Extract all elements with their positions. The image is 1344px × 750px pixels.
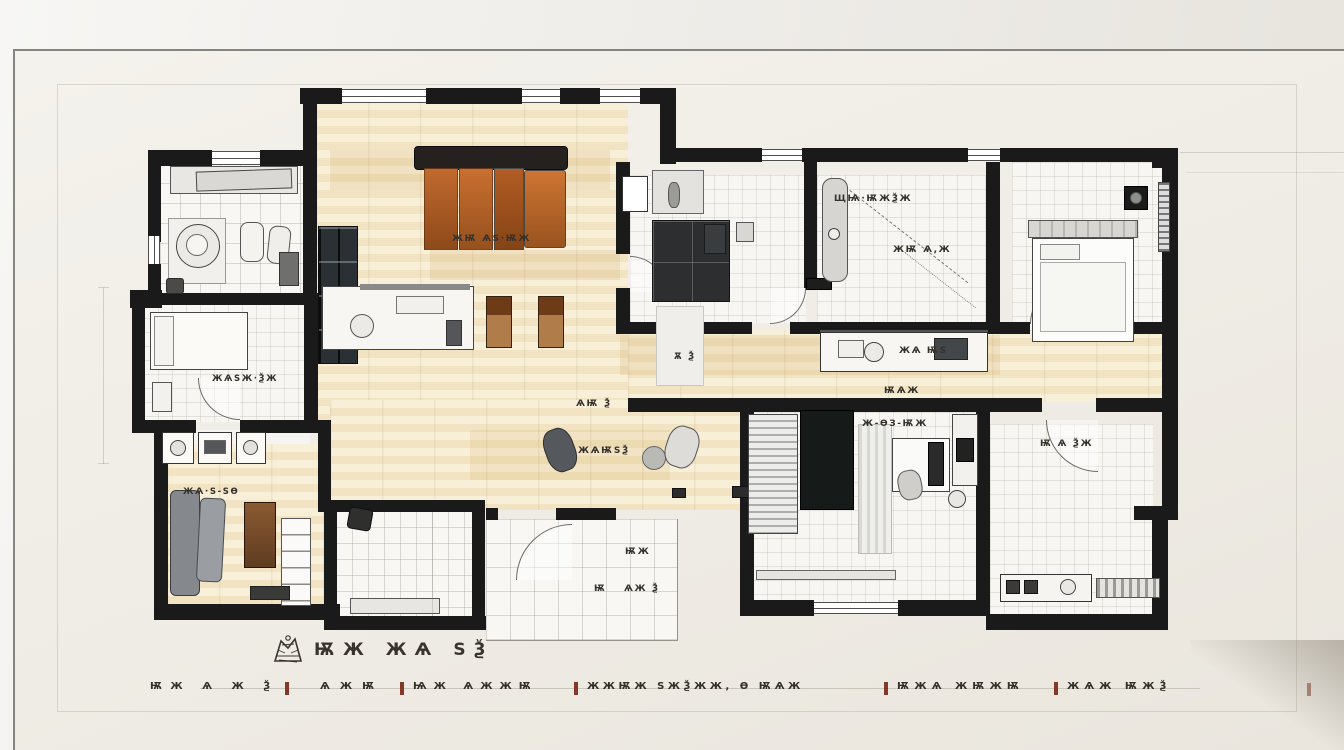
wall-segment [1152, 506, 1168, 630]
window [600, 89, 640, 103]
tv-cabinet-icon [244, 502, 276, 568]
patio-label: ѬЖ [625, 547, 650, 558]
wall-segment [560, 88, 600, 104]
wall-segment [976, 412, 990, 616]
rug-icon [656, 306, 704, 386]
dimension-line [103, 288, 104, 464]
wall-segment [676, 148, 762, 162]
wall-segment [148, 150, 161, 242]
wall-segment [986, 614, 1168, 630]
floor-patio [486, 519, 678, 641]
legend-tick [574, 682, 578, 695]
sink-icon [1060, 579, 1076, 595]
legend-item: ЖѦЖ ѬЖѮ [1067, 681, 1171, 692]
radiator-icon [1158, 182, 1170, 252]
rug-icon [858, 424, 892, 554]
legend-tick [400, 682, 404, 695]
wall-segment [556, 508, 616, 520]
wardrobe-icon [800, 410, 854, 510]
window [968, 149, 1000, 161]
counter-tray-icon [396, 296, 444, 314]
legend-item: ѨЖ ѦЖЖѬ [413, 681, 538, 692]
side-chair-icon [538, 296, 564, 348]
wall-segment [132, 300, 145, 432]
wall-segment [304, 293, 318, 433]
dial-icon [948, 490, 966, 508]
mattress-icon [748, 414, 798, 534]
room-label: ЖѬ ѦЅ·ѬЖ [452, 234, 531, 245]
wall-segment [486, 508, 498, 520]
room-label: ЖѦ ѬЅ [899, 346, 948, 357]
crest-icon [268, 632, 308, 668]
drawer-icon [1024, 580, 1038, 594]
wall-segment [303, 150, 317, 305]
sofa-icon [170, 490, 200, 596]
scene-background: ЖѬ ѦЅ·ѬЖ ЩѨ·ѬЖѮЖ ЖѬ Ѧ,Ж Ѫ Ѯ ЖѦ ѬЅ ѬѦЖ ѦѬ… [0, 0, 1344, 750]
cabinet-icon [279, 252, 299, 286]
room-label: Ѫ Ѯ [674, 352, 696, 363]
wall-segment [324, 504, 337, 620]
legend-tick [884, 682, 888, 695]
patio-label: Ѭ [594, 584, 607, 595]
pillow-icon [154, 316, 174, 366]
wall-segment [154, 604, 340, 620]
sink-icon [838, 340, 864, 358]
sink-icon [350, 314, 374, 338]
room-label: ЖѦЅЖ·ѮЖ [212, 374, 278, 384]
wall-segment [986, 162, 1000, 334]
room-label: ЖѦ·Ѕ-ЅѲ [183, 487, 239, 497]
legend-item: ѬЖѦ ЖѬЖѬ [897, 681, 1024, 692]
nightstand-icon [152, 382, 172, 412]
speaker-icon [1130, 192, 1142, 204]
corner-shadow [1190, 640, 1344, 750]
nightstand-icon [736, 222, 754, 242]
plan-title: ѬЖ ЖѦ ЅѮ [314, 640, 493, 660]
room-label: ЩѨ·ѬЖѮЖ [834, 194, 912, 205]
desk-panel-icon [196, 168, 293, 191]
toilet-icon [346, 506, 373, 532]
burner-icon [864, 342, 884, 362]
wall-segment [148, 293, 316, 305]
side-chair-icon [486, 296, 512, 348]
legend-tick [1054, 682, 1058, 695]
room-label: Ж-ѲЗ-ѬЖ [862, 419, 928, 430]
window [342, 89, 426, 103]
vanity-icon [350, 598, 440, 614]
room-label: ѬѦЖ [884, 386, 920, 397]
wall-frame-line-top [13, 49, 1344, 51]
wall-segment [472, 500, 485, 630]
legend-item: ЖЖѬЖ ЅЖѮЖЖ, Ѳ ѬѦЖ [587, 681, 804, 692]
pouf-icon [642, 446, 666, 470]
plate-icon [186, 234, 208, 256]
legend-item: ѦЖѬ [320, 681, 385, 692]
dark-mat-icon [166, 278, 184, 294]
low-shelf-icon [756, 570, 896, 580]
partition-line [432, 512, 433, 616]
vase-icon [668, 182, 680, 208]
picture-frame-icon [622, 176, 648, 212]
patio-label: ѦЖ Ѯ [624, 584, 660, 595]
washer-dial-icon [243, 440, 258, 455]
armchair-icon [240, 222, 264, 262]
knob-icon [828, 228, 840, 240]
washer-dial-icon [170, 440, 186, 456]
drawer-icon [1006, 580, 1020, 594]
legend-tick [285, 682, 289, 695]
wall-segment [1096, 398, 1166, 412]
window [212, 151, 260, 165]
stove-grate-icon [204, 440, 226, 454]
window [522, 89, 560, 103]
wall-segment [324, 500, 484, 512]
pencil-guide-line [1180, 152, 1344, 153]
wall-segment [318, 420, 331, 512]
wall-segment [804, 162, 817, 288]
window [814, 602, 900, 614]
floor-outlet-icon [672, 488, 686, 498]
wall-segment [802, 148, 968, 162]
pencil-guide-line [1186, 172, 1344, 173]
cabinet-door-icon [956, 438, 974, 462]
sofa-back-icon [414, 146, 568, 170]
sofa-cushion-icon [196, 497, 226, 582]
pillow-icon [704, 224, 726, 254]
appliance-icon [446, 320, 462, 346]
radiator-icon [1096, 578, 1160, 598]
room-label: ЖѬ Ѧ,Ж [893, 245, 951, 256]
counter-edge-icon [360, 284, 470, 290]
room-label: Ѭ Ѧ ѮЖ [1040, 439, 1093, 450]
dimension-tick [98, 287, 109, 288]
legend-item: ѬЖ Ѧ Ж Ѯ [150, 681, 278, 692]
pillow-icon [1040, 244, 1080, 260]
wall-frame-line-left [13, 49, 15, 750]
media-console-icon [250, 586, 290, 600]
wall-segment [324, 616, 486, 630]
wall-segment [660, 88, 676, 164]
wall-segment [616, 288, 630, 334]
room-label: ЖѦѬЅѮ [578, 446, 630, 457]
counter-edge-icon [820, 330, 988, 332]
dimension-tick [98, 463, 109, 464]
room-label: ѦѬ Ѯ [576, 399, 612, 410]
wall-segment [426, 88, 522, 104]
headboard-icon [1028, 220, 1138, 238]
blanket-icon [1040, 262, 1126, 332]
window [762, 149, 802, 161]
monitor-icon [928, 442, 944, 486]
